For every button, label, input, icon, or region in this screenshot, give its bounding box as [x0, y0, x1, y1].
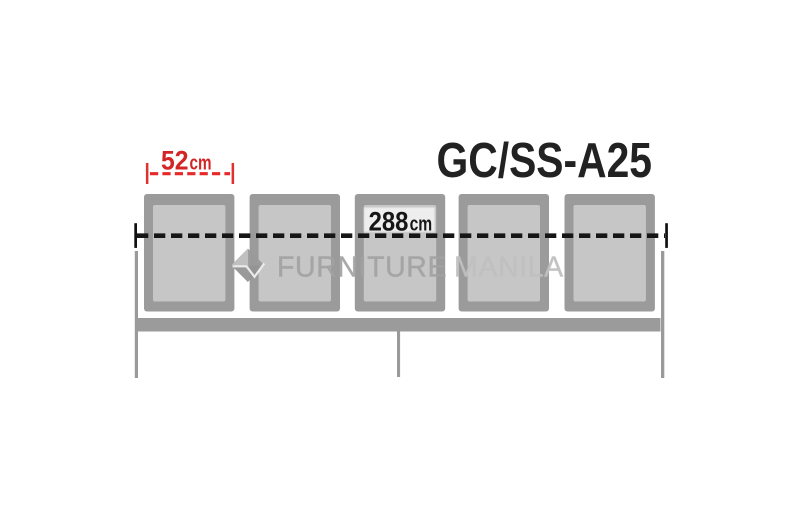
svg-text:FURNITURE: FURNITURE: [277, 252, 447, 284]
svg-text:52: 52: [161, 146, 189, 176]
svg-text:MANILA: MANILA: [454, 252, 564, 284]
svg-text:GC/SS-A25: GC/SS-A25: [437, 133, 653, 188]
svg-text:cm: cm: [410, 214, 433, 236]
svg-text:288: 288: [369, 207, 409, 237]
svg-text:cm: cm: [190, 153, 212, 175]
